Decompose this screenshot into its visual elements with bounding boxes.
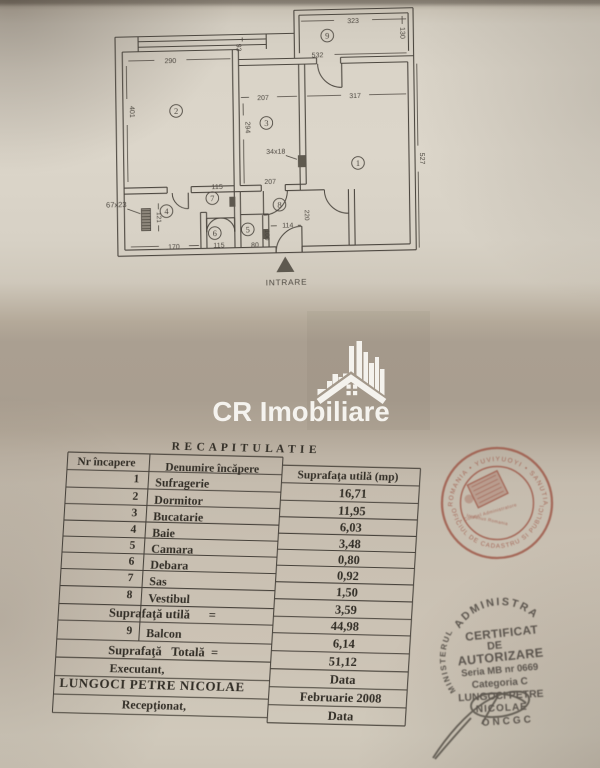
svg-text:6: 6 xyxy=(128,556,135,568)
svg-text:Recepţionat,: Recepţionat, xyxy=(121,697,186,713)
svg-text:Suprafaţă Totală =: Suprafaţă Totală = xyxy=(108,643,219,660)
svg-text:3: 3 xyxy=(131,507,138,519)
svg-text:Vestibul: Vestibul xyxy=(148,591,191,606)
svg-text:R E C A P I T U L A T I E: R E C A P I T U L A T I E xyxy=(171,440,317,455)
svg-text:5: 5 xyxy=(129,540,136,552)
svg-text:1: 1 xyxy=(133,473,140,485)
svg-text:207: 207 xyxy=(257,95,269,102)
svg-text:44,98: 44,98 xyxy=(330,619,359,634)
svg-text:4: 4 xyxy=(130,524,137,536)
svg-text:Suprafaţa utilă (mp): Suprafaţa utilă (mp) xyxy=(297,469,399,483)
svg-text:Nr încapere: Nr încapere xyxy=(77,456,136,469)
svg-text:Balcon: Balcon xyxy=(146,626,183,641)
svg-text:114: 114 xyxy=(282,222,293,229)
svg-text:1,50: 1,50 xyxy=(336,585,359,600)
svg-text:80: 80 xyxy=(251,242,259,249)
svg-text:Denumire încăpere: Denumire încăpere xyxy=(165,461,260,475)
svg-text:290: 290 xyxy=(165,58,177,65)
svg-text:9: 9 xyxy=(325,31,329,41)
svg-text:294: 294 xyxy=(243,121,250,133)
svg-text:115: 115 xyxy=(213,242,224,249)
svg-text:INTRARE: INTRARE xyxy=(266,278,308,288)
svg-text:Data: Data xyxy=(327,709,354,724)
svg-text:Camara: Camara xyxy=(151,542,194,557)
svg-text:7: 7 xyxy=(127,572,134,584)
svg-text:Sufragerie: Sufragerie xyxy=(155,475,210,490)
svg-text:8: 8 xyxy=(126,589,133,601)
svg-text:Dormitor: Dormitor xyxy=(154,493,204,508)
svg-text:1: 1 xyxy=(356,158,360,168)
svg-text:207: 207 xyxy=(264,179,276,186)
svg-text:3,48: 3,48 xyxy=(339,537,362,552)
svg-text:34x18: 34x18 xyxy=(266,149,285,156)
svg-text:Suprafaţă utilă =: Suprafaţă utilă = xyxy=(109,606,217,623)
svg-text:6,14: 6,14 xyxy=(333,637,356,652)
svg-text:2: 2 xyxy=(132,491,139,503)
svg-text:3,59: 3,59 xyxy=(335,602,358,617)
svg-text:Baie: Baie xyxy=(152,526,176,541)
svg-text:0,80: 0,80 xyxy=(338,553,361,568)
svg-text:Bucatarie: Bucatarie xyxy=(153,509,205,524)
svg-text:4: 4 xyxy=(164,206,169,216)
svg-text:220: 220 xyxy=(303,210,310,221)
svg-text:5: 5 xyxy=(246,224,250,234)
svg-text:Debara: Debara xyxy=(150,558,189,573)
svg-text:16,71: 16,71 xyxy=(338,486,367,501)
svg-text:CR Imobiliare: CR Imobiliare xyxy=(212,396,389,427)
svg-text:532: 532 xyxy=(312,52,324,59)
svg-text:6: 6 xyxy=(213,228,217,238)
svg-text:317: 317 xyxy=(349,93,361,100)
svg-text:Februarie 2008: Februarie 2008 xyxy=(299,690,381,706)
svg-text:MINISTERUL: MINISTERUL xyxy=(438,627,457,695)
svg-text:100: 100 xyxy=(263,229,270,240)
svg-text:Executant,: Executant, xyxy=(109,661,165,676)
svg-text:0,92: 0,92 xyxy=(337,569,360,584)
svg-text:2: 2 xyxy=(174,106,178,116)
svg-text:8: 8 xyxy=(277,200,281,210)
svg-text:Data: Data xyxy=(329,673,356,688)
svg-text:CERTIFICAT: CERTIFICAT xyxy=(464,622,539,644)
svg-text:11,95: 11,95 xyxy=(338,504,366,519)
svg-text:51,12: 51,12 xyxy=(328,655,357,670)
svg-text:6,03: 6,03 xyxy=(340,520,363,535)
svg-text:130: 130 xyxy=(398,27,405,39)
svg-text:323: 323 xyxy=(347,18,359,25)
svg-text:9: 9 xyxy=(126,625,133,637)
svg-text:7: 7 xyxy=(210,193,214,203)
svg-text:LUNGOCI PETRE NICOLAE: LUNGOCI PETRE NICOLAE xyxy=(59,675,245,694)
svg-text:67x23: 67x23 xyxy=(106,200,127,209)
svg-text:3: 3 xyxy=(264,118,268,128)
svg-text:Sas: Sas xyxy=(149,574,168,588)
svg-text:401: 401 xyxy=(128,106,135,118)
svg-text:527: 527 xyxy=(418,153,425,165)
svg-text:115: 115 xyxy=(212,184,223,191)
svg-text:93: 93 xyxy=(234,44,241,52)
svg-text:170: 170 xyxy=(168,244,180,251)
svg-text:Categoria C: Categoria C xyxy=(471,676,528,691)
svg-text:LUNGOCI PETRE: LUNGOCI PETRE xyxy=(458,689,544,704)
